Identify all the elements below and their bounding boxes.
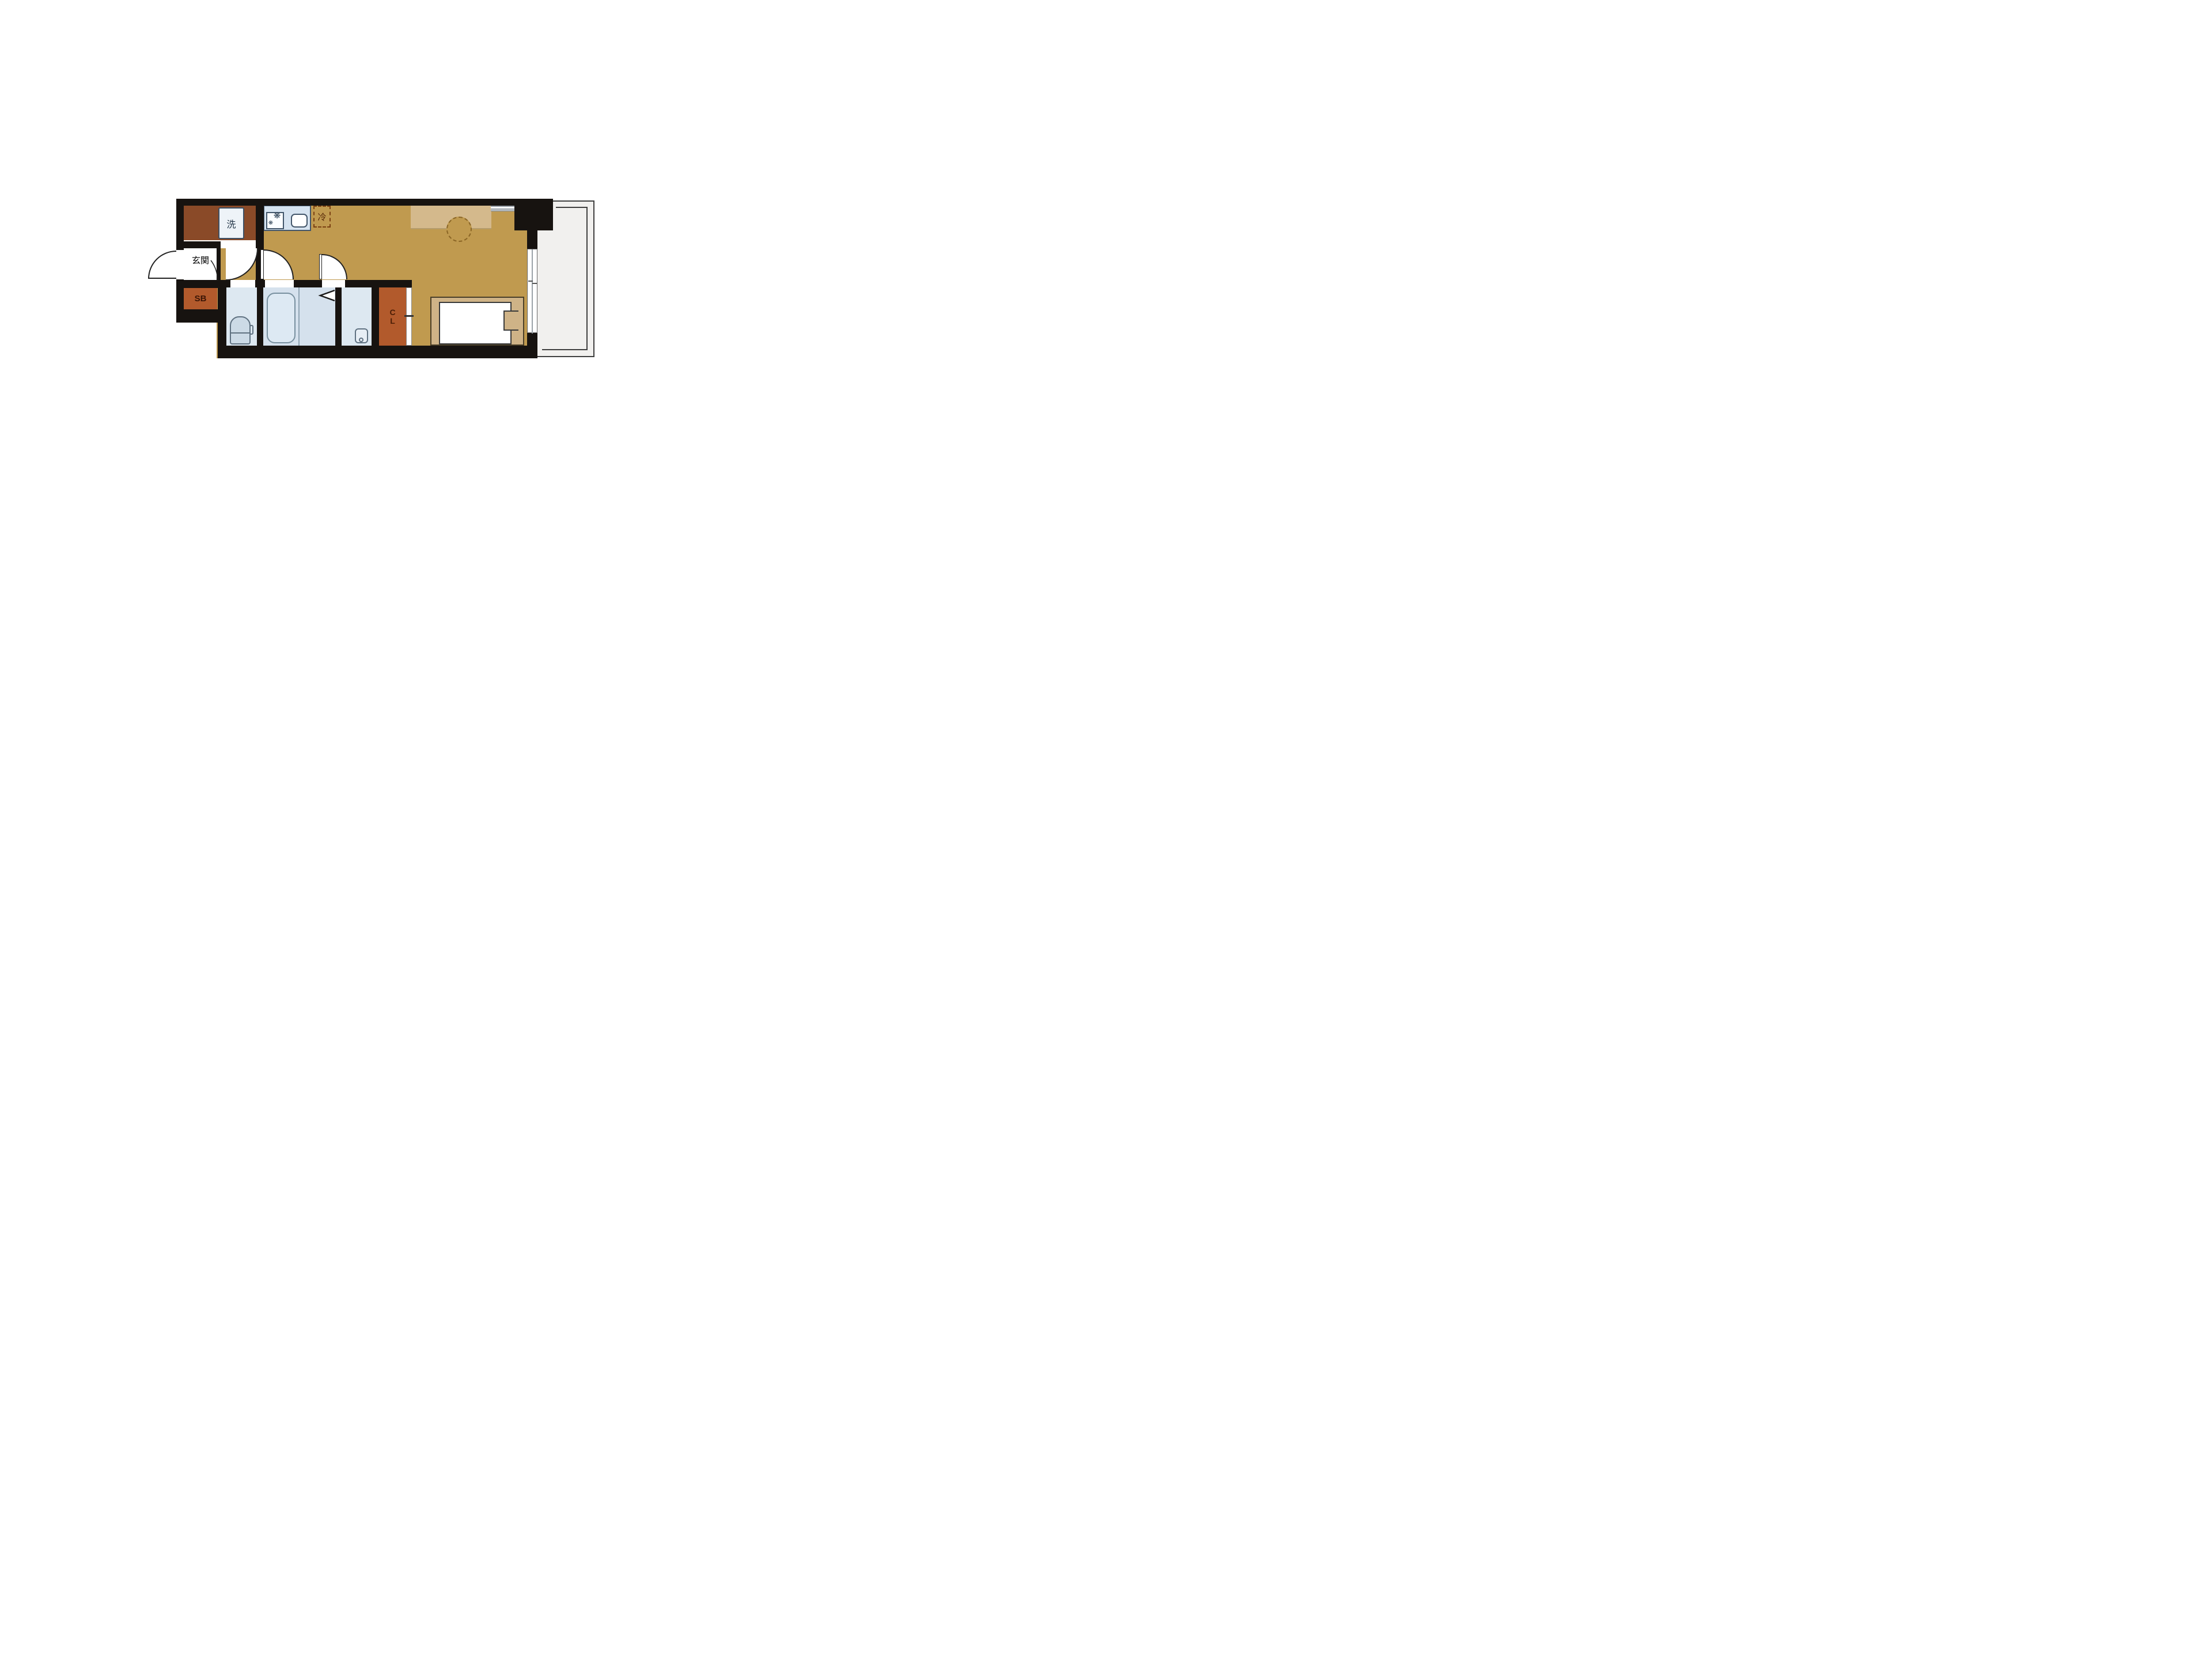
wash-basin-drain [359,338,363,342]
wall-entrance-right [217,241,221,280]
wall-washroom-closet [372,280,379,346]
balcony-outer-top [553,200,594,202]
bath-area-door-leaf [260,249,264,279]
shoe-box-label: SB [195,294,207,304]
entry-door-swing [148,251,176,279]
high-window [491,206,514,211]
toilet-handle [249,325,253,335]
closet-letter-l: L [390,317,395,325]
toilet-seat-line [231,332,249,334]
balcony-inner-right [586,207,588,350]
floor-plan: SB C L ❋ ❋ 冷 洗 [0,0,737,553]
balcony-window-meet-tick-left [528,281,533,282]
sink [291,214,308,228]
closet: C L [379,287,406,346]
entry-door-gap [176,250,184,279]
balcony-outer-bottom [537,356,594,357]
bath-door-gap [265,280,294,287]
balcony-window-meet-tick-right [532,283,537,284]
fridge-space: 冷 [313,206,331,228]
balcony-floor-upper [553,201,594,232]
wall-corner-block [514,199,553,230]
wall-bottom [218,346,537,358]
bed-pillow-notch [503,310,518,331]
balcony-inner-bottom [542,349,588,350]
high-window-line [491,209,514,210]
bed-duvet [439,302,512,344]
entrance-label: 玄関 [184,253,217,266]
balcony-window-center-line [532,249,533,334]
bathtub [267,293,296,343]
washer-label: 洗 [226,217,236,230]
shoe-box: SB [184,288,217,309]
entrance-label-text: 玄関 [192,254,209,266]
washing-machine-pan: 洗 [218,207,244,239]
wall-entrance-sb [183,280,218,288]
wall-toilet-bath [257,287,263,346]
counter-chair-notch [446,217,472,242]
fridge-label: 冷 [317,211,326,223]
bath-divider-line [298,287,300,346]
washroom-door-leaf [319,254,322,279]
wall-left-upper [176,199,184,250]
wall-above-entrance [183,241,217,248]
closet-door-tick [404,315,414,317]
toilet-tank [230,316,251,344]
toilet-door-gap [230,280,255,287]
wall-toilet-left [218,287,226,346]
balcony-inner-top [556,207,588,208]
balcony-window [527,249,537,333]
wall-bath-washroom [335,287,342,346]
balcony-outer-right [593,200,594,357]
stove-burner-icon-small: ❋ [267,219,275,228]
wall-top [176,199,553,206]
closet-letter-c: C [389,308,395,317]
wall-right-upper [527,230,537,249]
washroom-door-gap [322,280,345,287]
wall-right-lower [527,333,537,358]
